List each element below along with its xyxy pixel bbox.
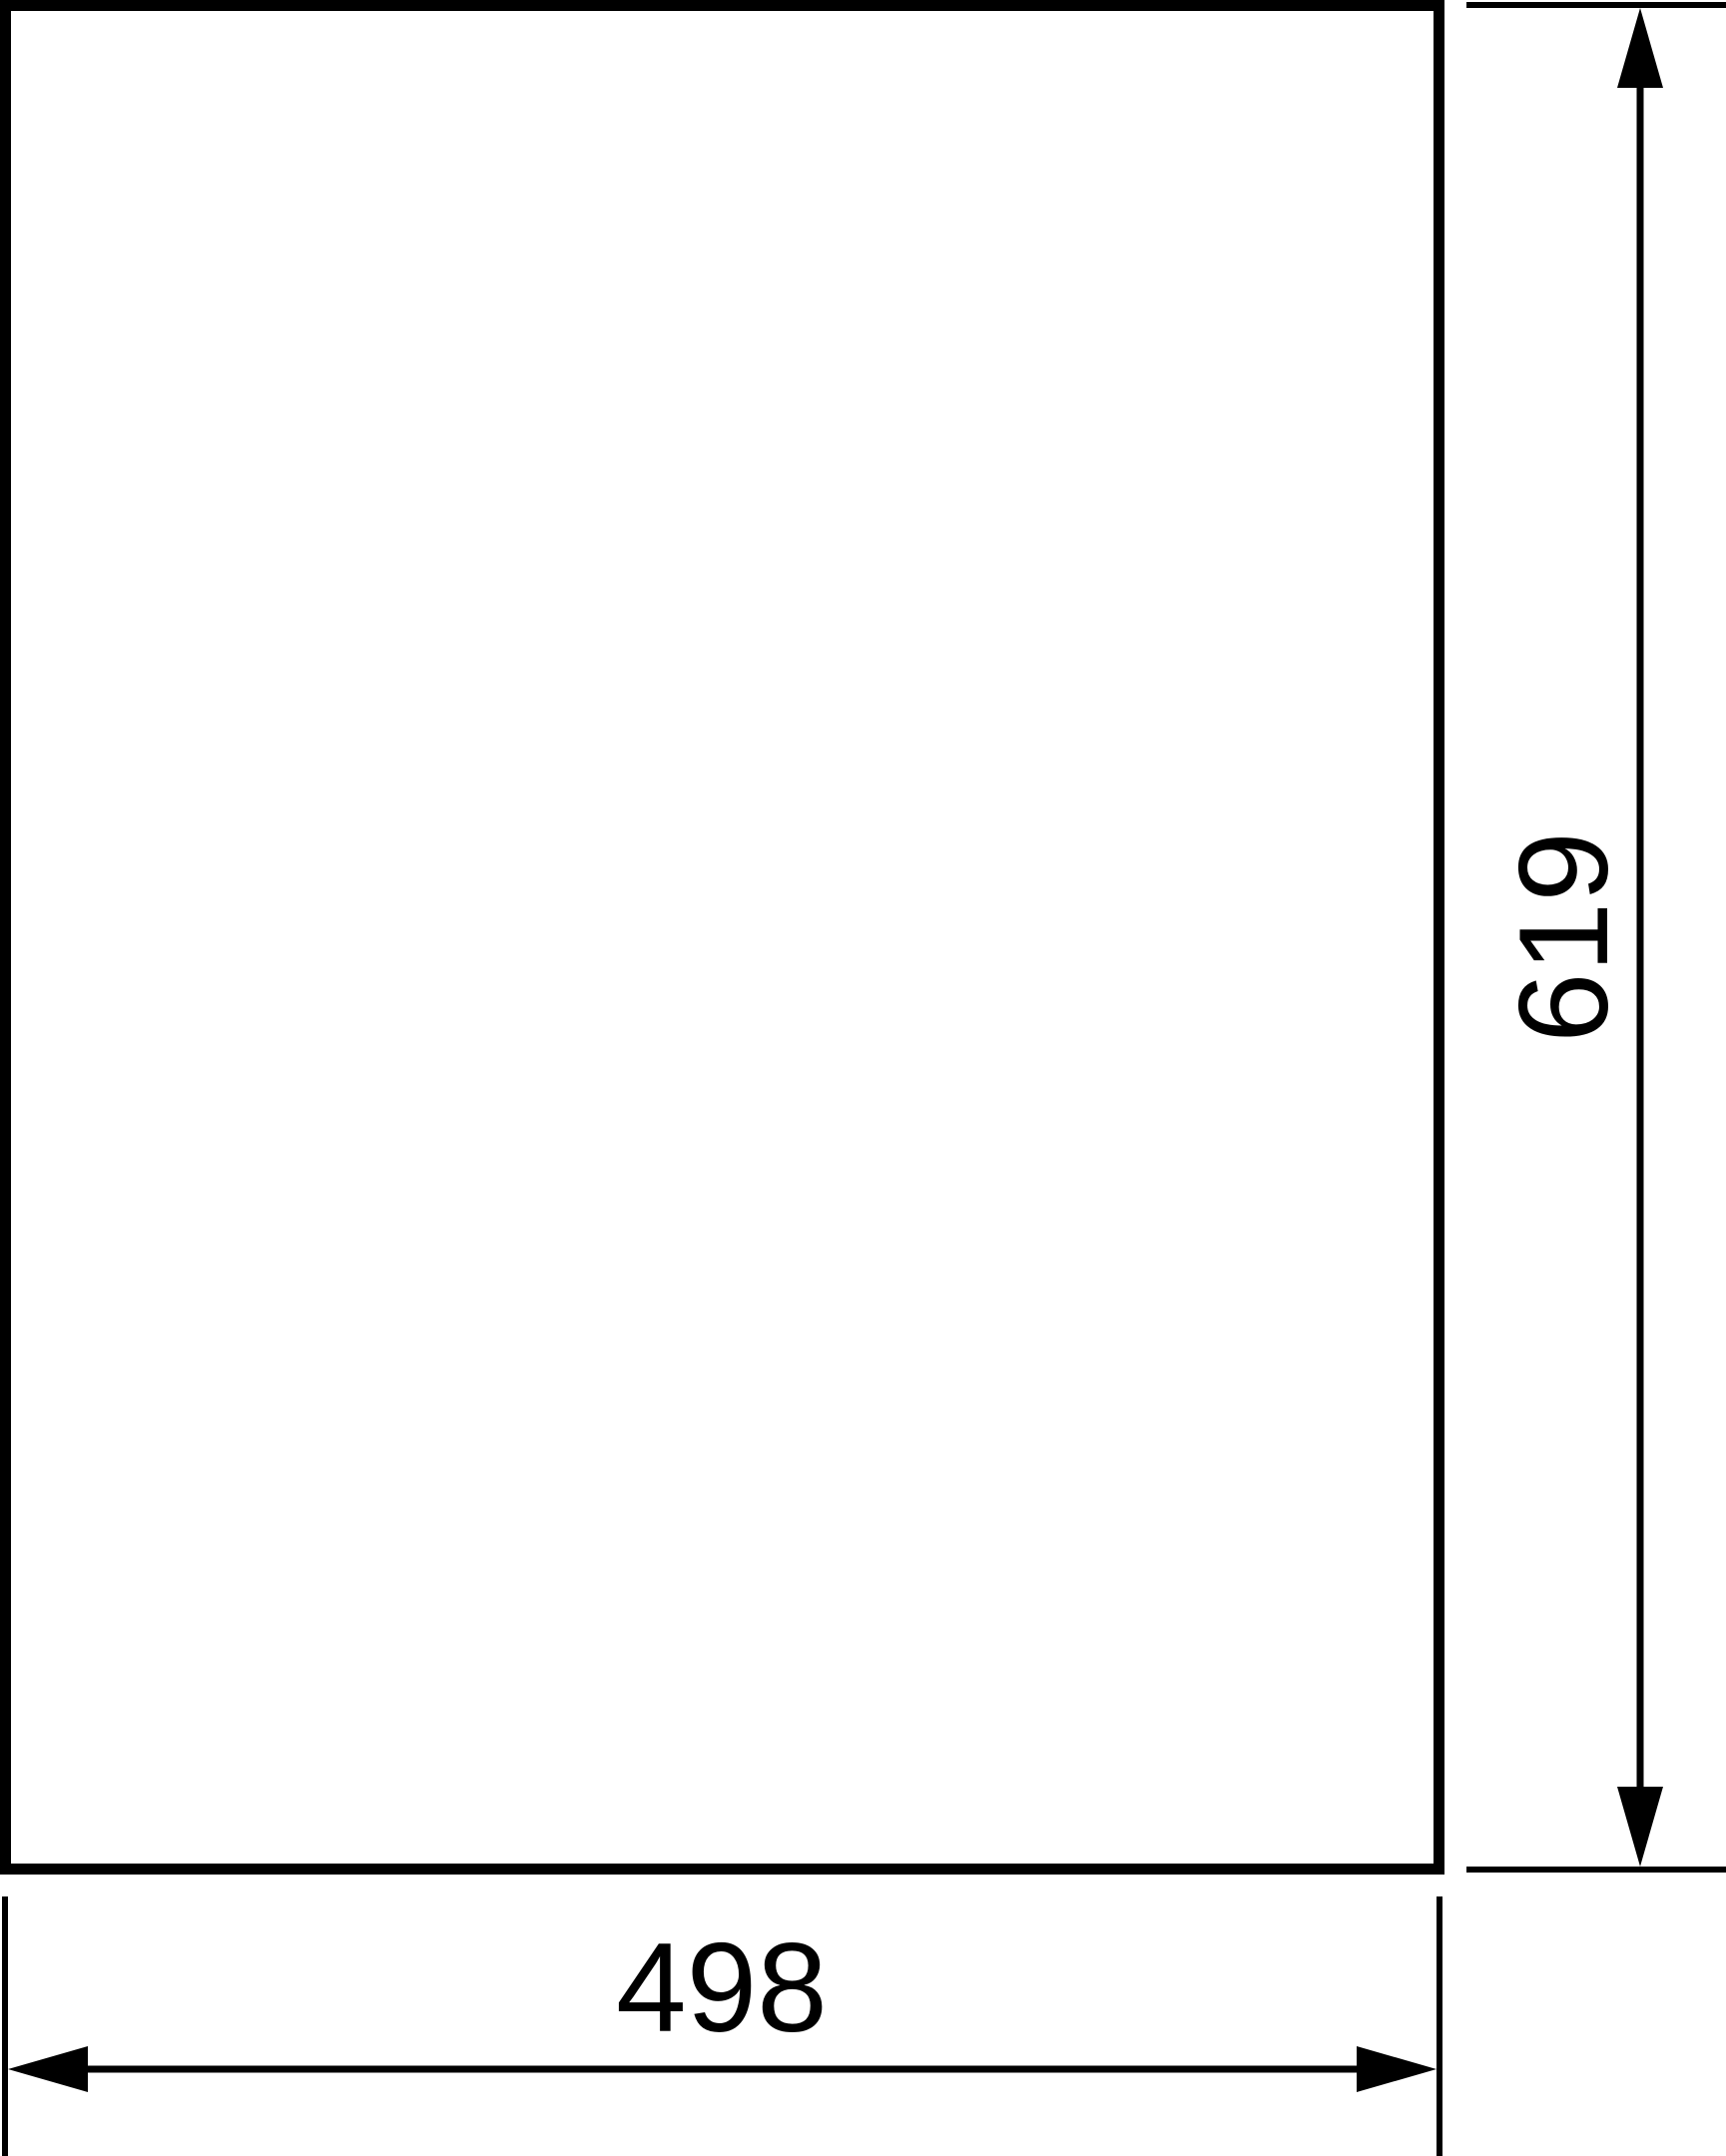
arrowhead-up-icon (1617, 8, 1663, 88)
arrowhead-left-icon (8, 2046, 88, 2092)
arrowhead-right-icon (1357, 2046, 1437, 2092)
dimension-drawing: 619 498 (0, 0, 1726, 2156)
arrowhead-down-icon (1617, 1787, 1663, 1867)
part-outline-rect (6, 6, 1439, 1870)
height-dimension-label: 619 (1492, 831, 1634, 1043)
width-dimension-label: 498 (616, 1916, 828, 2058)
drawing-canvas: 619 498 (0, 0, 1726, 2156)
